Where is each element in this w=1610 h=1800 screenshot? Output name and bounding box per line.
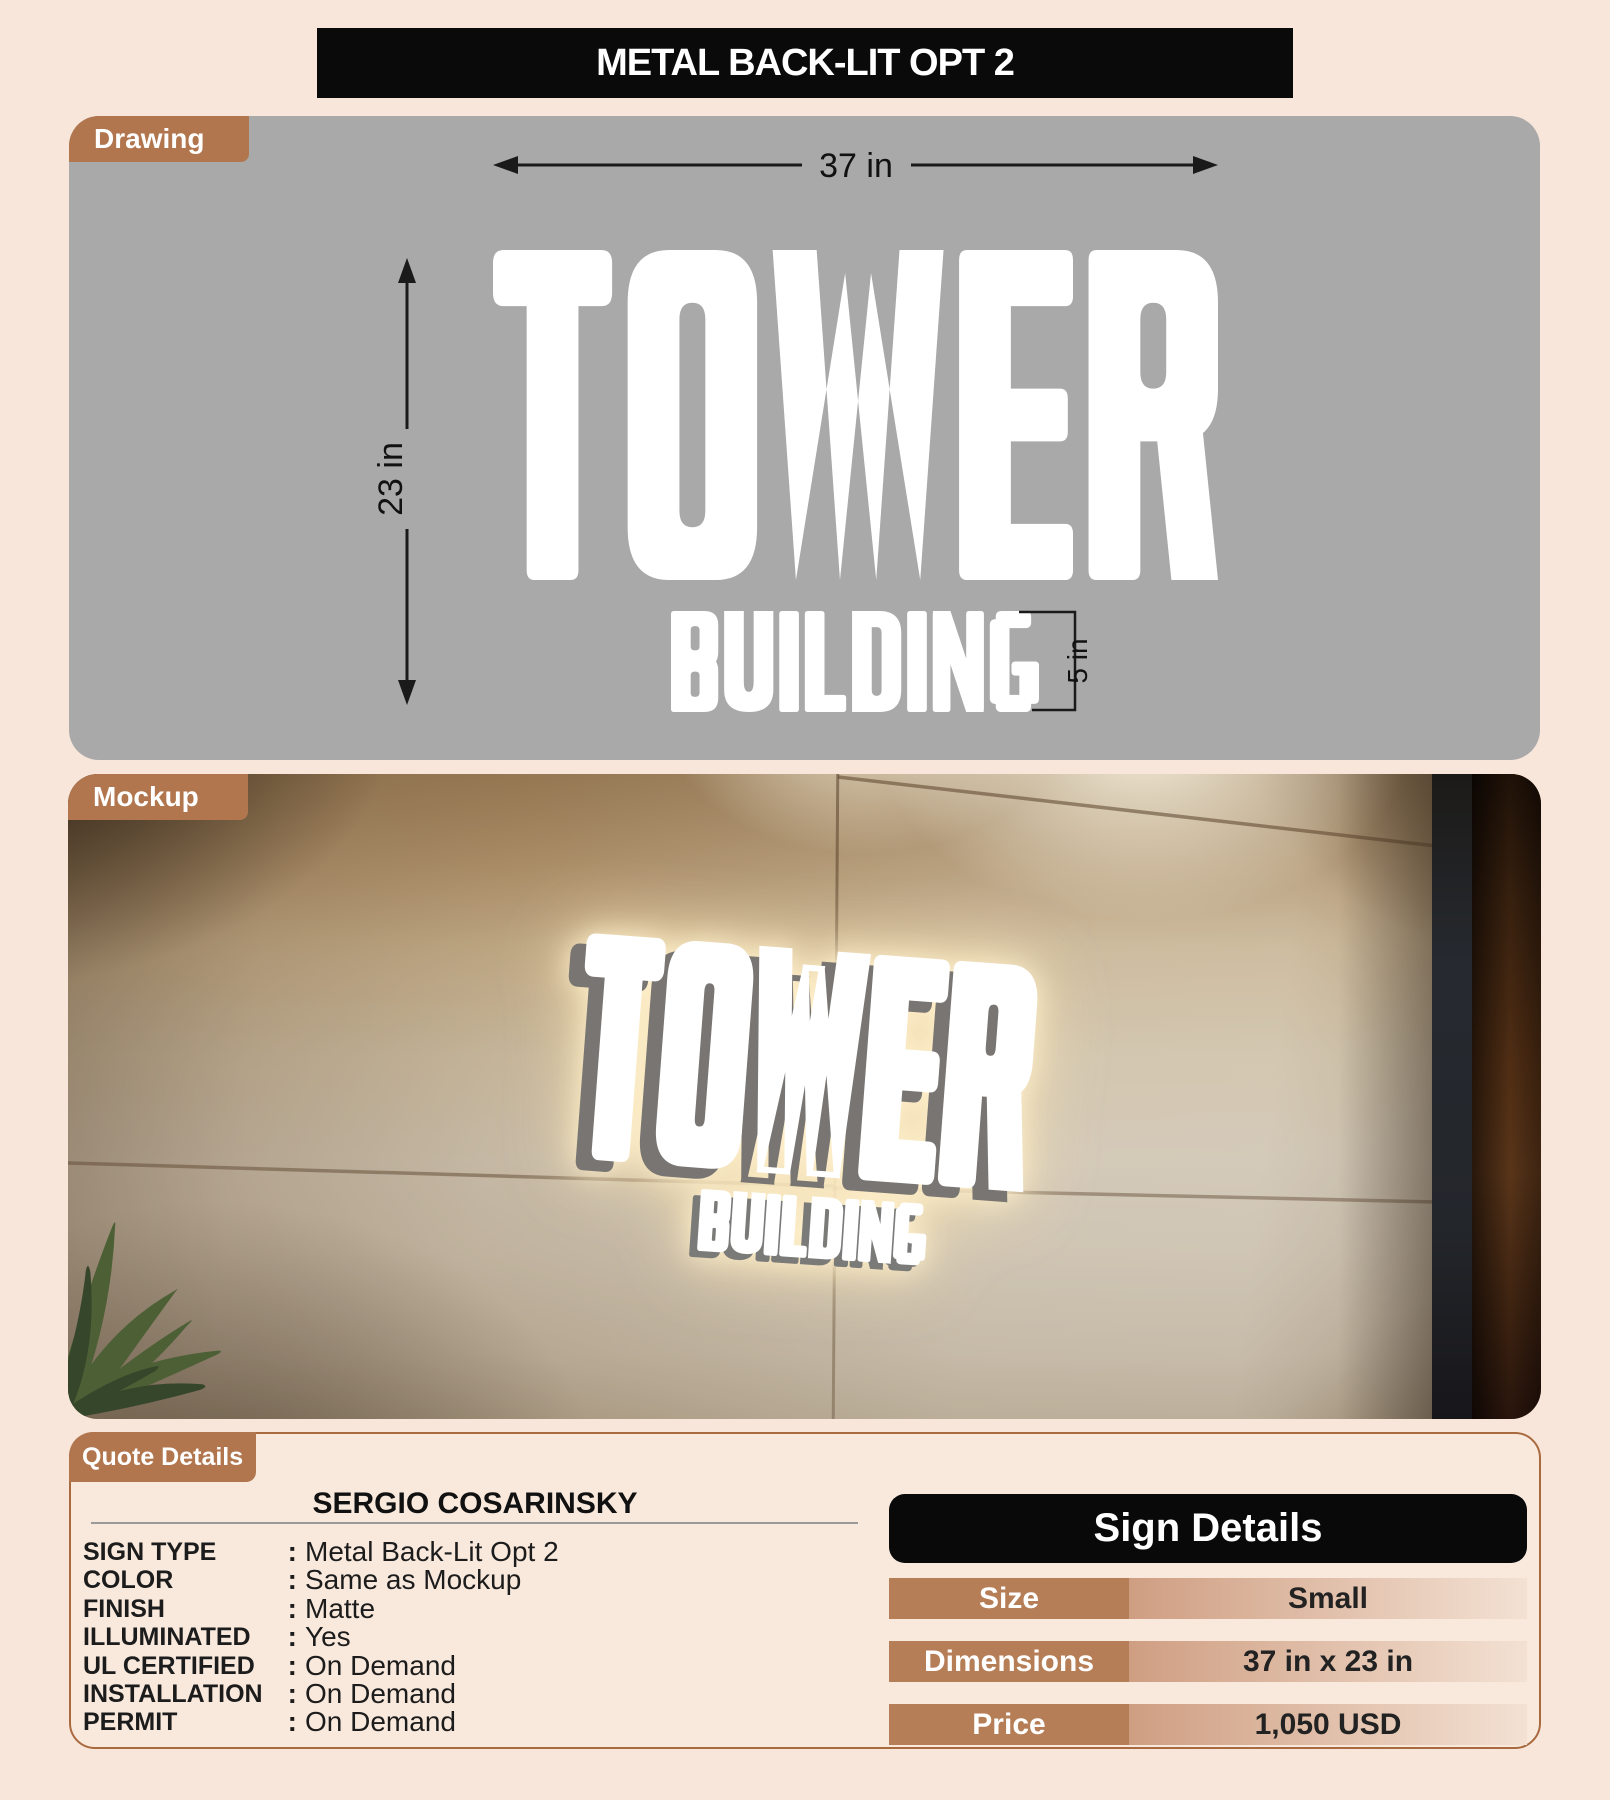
svg-text:5 in: 5 in (1062, 638, 1093, 683)
svg-text:37 in: 37 in (819, 147, 893, 185)
svg-text:23 in: 23 in (372, 442, 410, 516)
